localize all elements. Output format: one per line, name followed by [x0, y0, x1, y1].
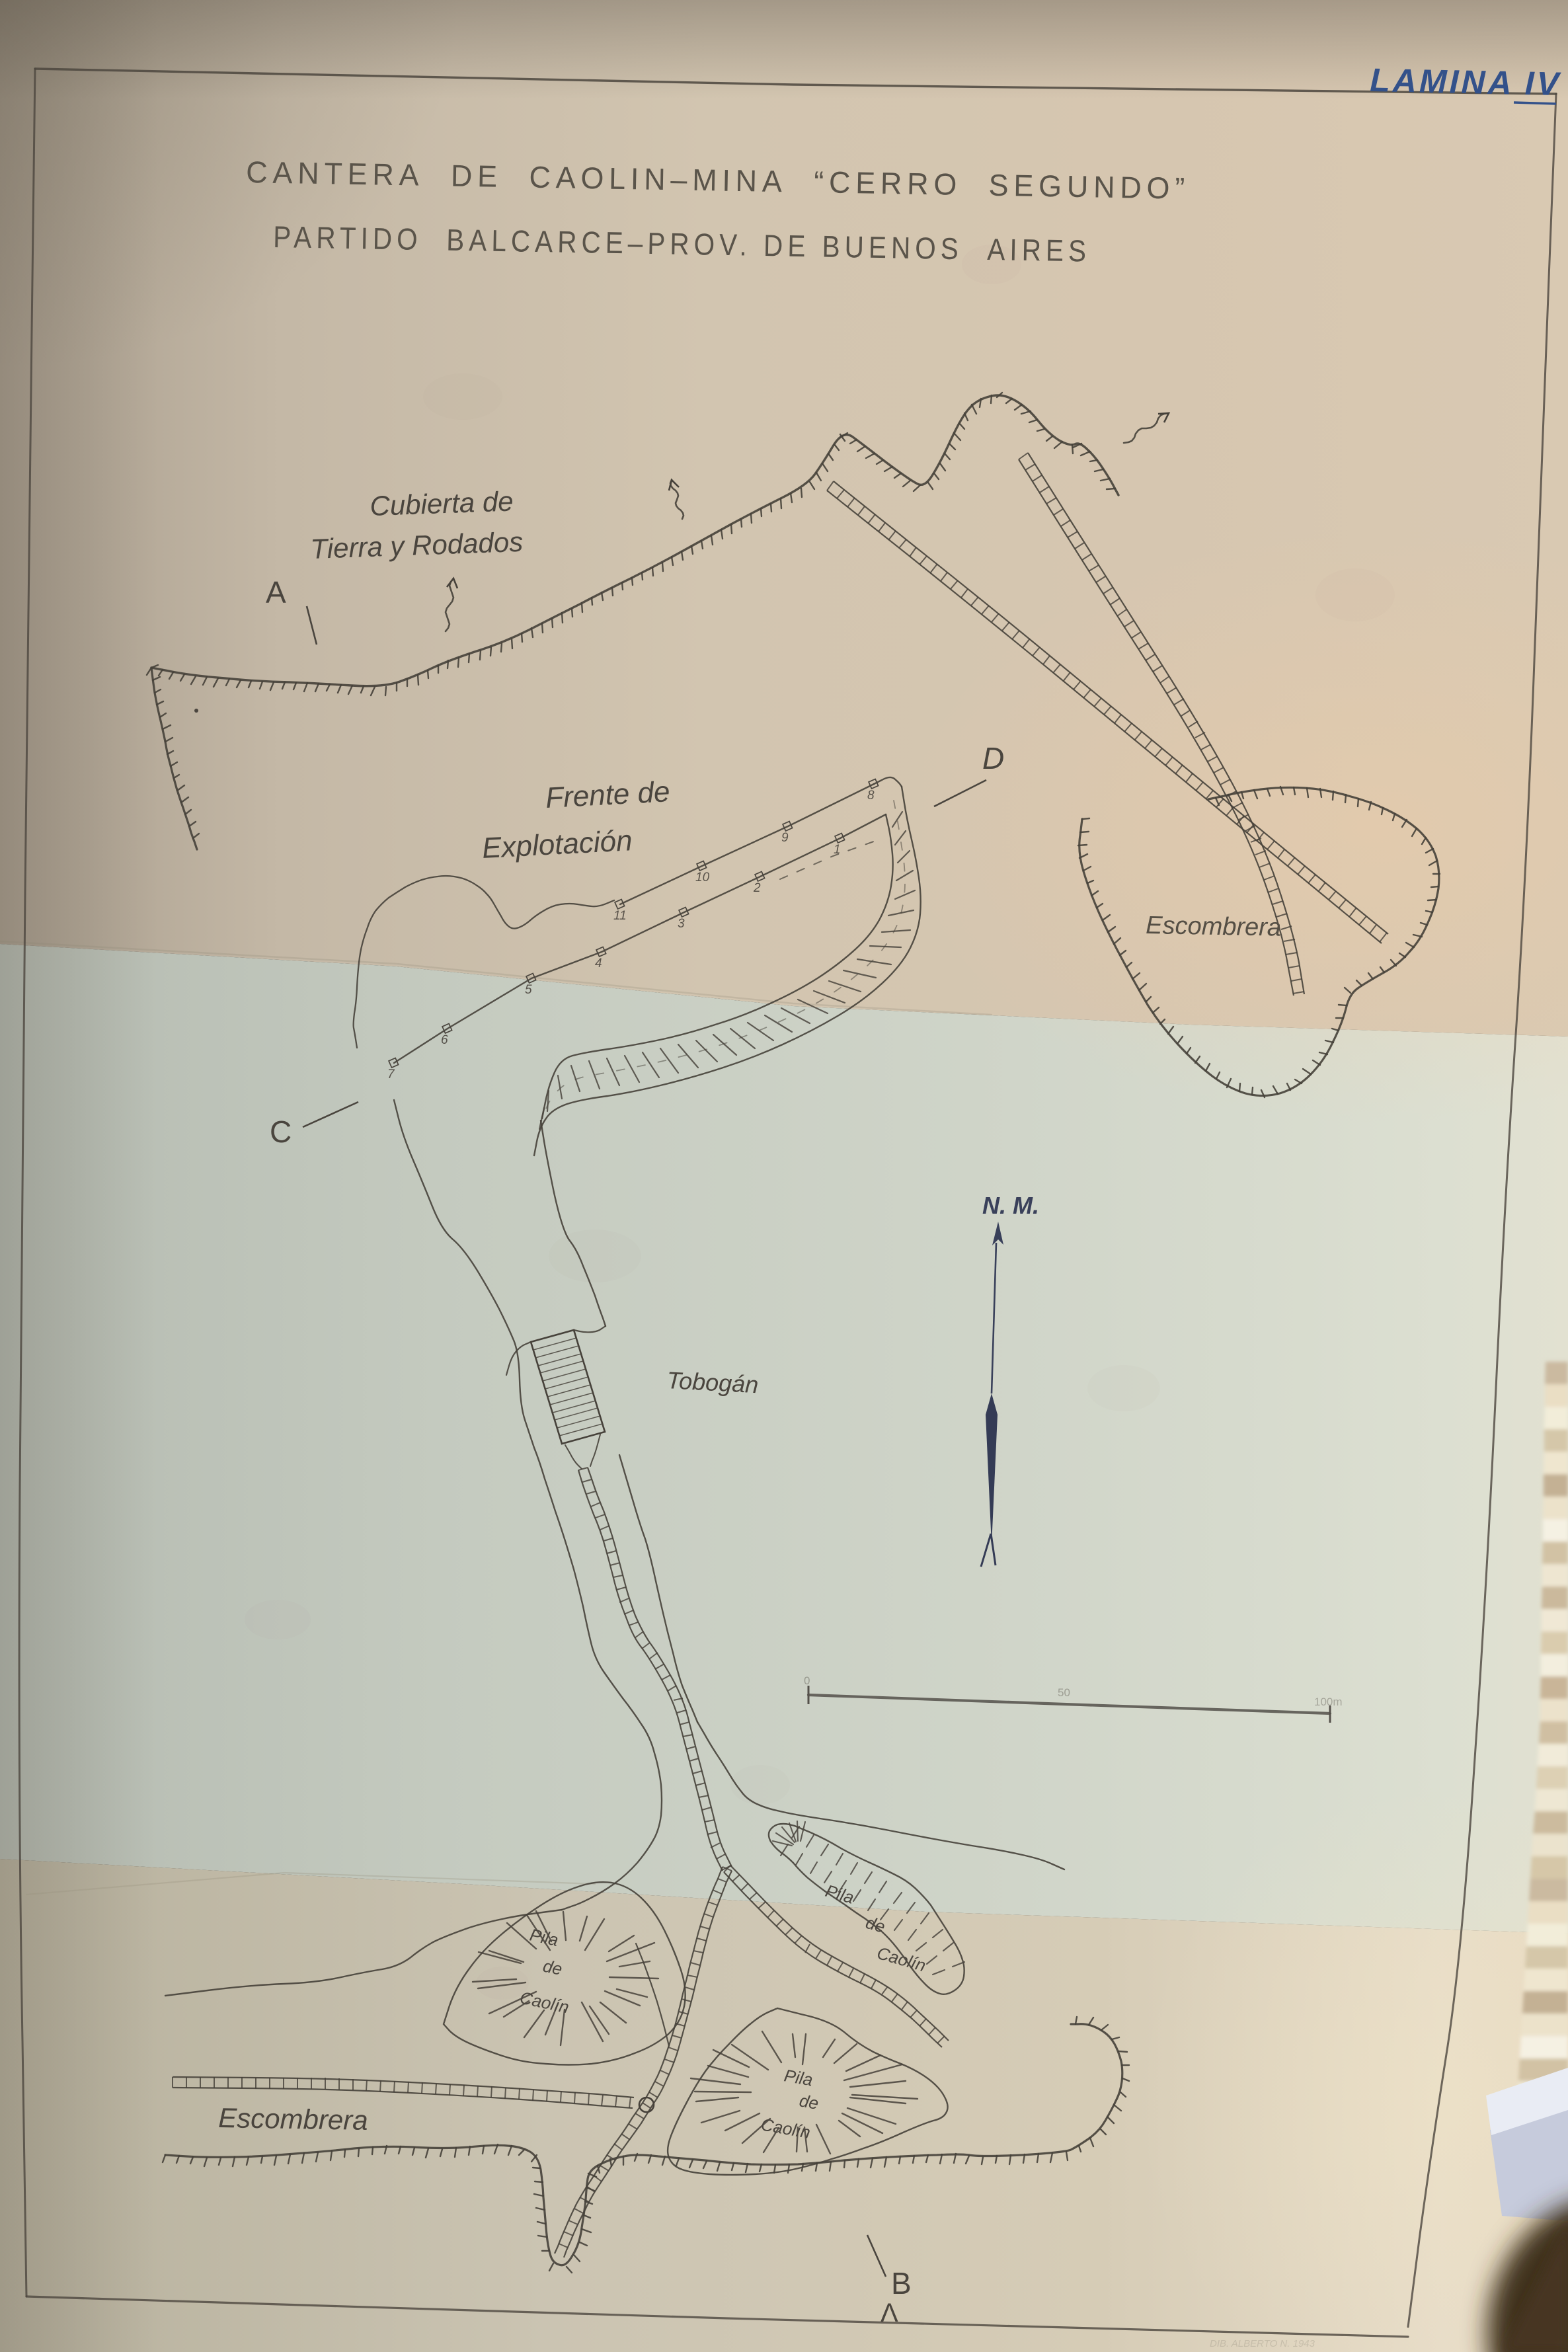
- svg-text:Λ: Λ: [881, 2298, 898, 2328]
- svg-text:10: 10: [695, 871, 710, 884]
- svg-text:Tobogán: Tobogán: [666, 1366, 760, 1398]
- svg-text:C: C: [270, 1115, 292, 1149]
- svg-text:7: 7: [387, 1068, 395, 1081]
- svg-text:N. M.: N. M.: [982, 1192, 1039, 1219]
- svg-text:de: de: [798, 2090, 820, 2113]
- svg-text:6: 6: [441, 1033, 448, 1047]
- svg-text:D: D: [982, 741, 1004, 775]
- svg-text:0: 0: [804, 1674, 810, 1687]
- svg-text:de: de: [541, 1956, 565, 1979]
- svg-text:4: 4: [595, 957, 602, 970]
- svg-text:Frente de: Frente de: [545, 775, 671, 814]
- svg-text:50: 50: [1058, 1686, 1070, 1699]
- svg-text:B: B: [891, 2266, 912, 2300]
- svg-text:8: 8: [867, 789, 875, 803]
- svg-text:3: 3: [678, 917, 685, 931]
- svg-text:LAMINA IV: LAMINA IV: [1370, 61, 1562, 102]
- svg-text:Escombrera: Escombrera: [1146, 912, 1282, 942]
- svg-text:A: A: [266, 575, 286, 609]
- svg-text:DIB. ALBERTO N. 1943: DIB. ALBERTO N. 1943: [1210, 2338, 1315, 2349]
- svg-text:100m: 100m: [1314, 1696, 1343, 1708]
- svg-text:2: 2: [753, 881, 761, 895]
- svg-text:Cubierta de: Cubierta de: [370, 485, 514, 522]
- svg-text:Escombrera: Escombrera: [218, 2102, 368, 2136]
- svg-text:9: 9: [781, 831, 789, 845]
- svg-text:11: 11: [613, 909, 627, 923]
- svg-text:5: 5: [525, 983, 532, 997]
